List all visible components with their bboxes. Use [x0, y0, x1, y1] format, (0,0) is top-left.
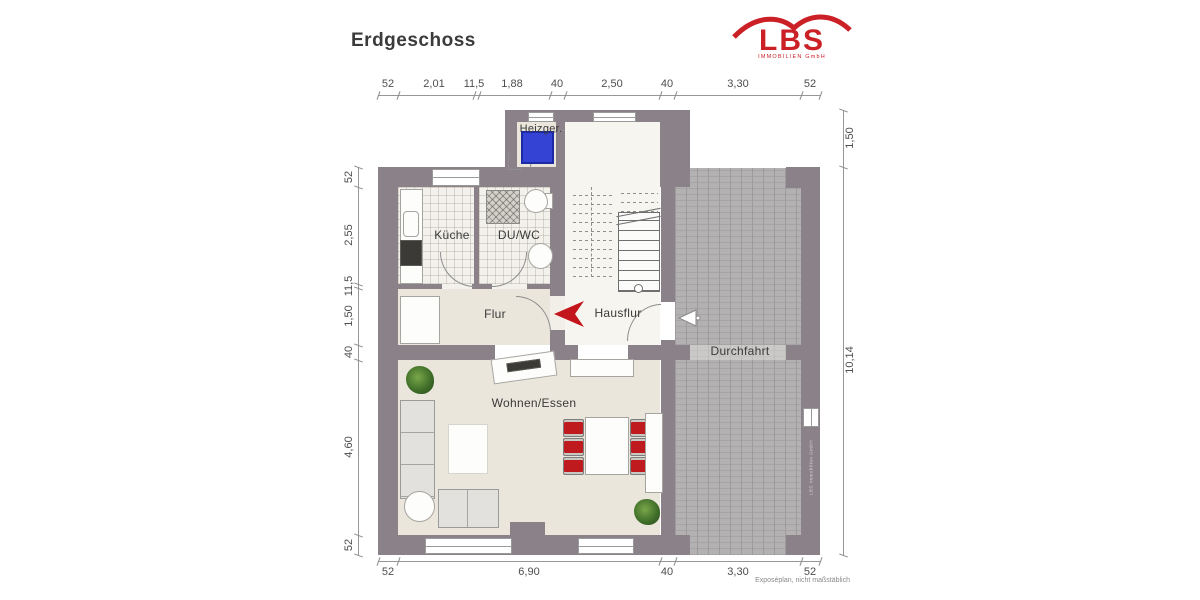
- floor-durchfahrt: [675, 168, 801, 555]
- dim-label: 40: [343, 330, 355, 374]
- kitchen-stove: [400, 240, 422, 266]
- dim-label: 10,14: [844, 338, 856, 382]
- sofa-large: [400, 400, 435, 499]
- dimension-line-top: [378, 95, 820, 96]
- wall-pillar: [786, 345, 801, 360]
- lbs-logo-graphic: LBS IMMOBILIEN GmbH: [730, 6, 854, 60]
- dim-label: 6,90: [507, 566, 551, 578]
- wall-segment: [398, 284, 442, 289]
- entrance-arrow-icon: [554, 301, 584, 327]
- dim-label: 3,30: [716, 78, 760, 90]
- dining-chair: [563, 457, 584, 475]
- footnote: Exposéplan, nicht maßstäblich: [640, 577, 850, 584]
- dim-label: 40: [645, 78, 689, 90]
- stairs-centerline: [591, 187, 592, 277]
- dim-label: 1,88: [490, 78, 534, 90]
- window: [528, 112, 554, 122]
- wall-segment: [550, 328, 565, 345]
- plan-watermark: LBS Immobilien GmbH: [809, 418, 814, 518]
- dim-label: 52: [366, 566, 410, 578]
- window: [425, 538, 512, 554]
- wall-pillar: [675, 535, 690, 555]
- wall-pillar: [675, 345, 690, 360]
- wall-segment: [378, 167, 398, 555]
- dining-chair: [563, 438, 584, 456]
- room-label-durchfahrt: Durchfahrt: [710, 344, 769, 358]
- door-direction-icon: [677, 308, 701, 328]
- plant: [634, 499, 660, 525]
- dining-table: [585, 417, 629, 475]
- wall-segment: [660, 167, 690, 187]
- tv: [506, 359, 541, 373]
- wall-segment: [472, 284, 492, 289]
- heater-pipe: [508, 169, 522, 170]
- cabinet: [570, 359, 634, 377]
- window: [593, 112, 636, 122]
- wall-segment: [527, 284, 550, 289]
- logo-text: LBS: [759, 24, 825, 57]
- wardrobe: [400, 296, 440, 344]
- sideboard: [645, 413, 663, 493]
- dim-label: 40: [535, 78, 579, 90]
- dim-label: 52: [366, 78, 410, 90]
- stairs-newel: [634, 284, 643, 293]
- dim-label: 2,01: [412, 78, 456, 90]
- dimension-line-bottom: [378, 561, 820, 562]
- sofa-small: [438, 489, 499, 528]
- wall-segment: [660, 110, 690, 168]
- room-label-flur: Flur: [484, 307, 506, 321]
- dining-chair: [563, 419, 584, 437]
- window: [432, 169, 480, 186]
- wall-segment: [628, 345, 661, 360]
- stairs-lower-flight: [618, 212, 660, 292]
- coffee-table: [448, 424, 488, 474]
- room-label-heizgeraet: Heizger.: [520, 123, 563, 135]
- floorplan-page: Erdgeschoss LBS IMMOBILIEN GmbH: [0, 0, 1200, 600]
- dim-label: 52: [343, 155, 355, 199]
- room-label-duwc: DU/WC: [498, 228, 540, 242]
- lbs-logo: LBS IMMOBILIEN GmbH: [730, 6, 854, 60]
- window: [578, 538, 634, 554]
- room-label-wohnen: Wohnen/Essen: [492, 396, 577, 410]
- room-label-kueche: Küche: [434, 228, 470, 242]
- washbasin: [528, 243, 553, 269]
- wall-segment: [661, 187, 675, 535]
- dim-label: 2,55: [343, 213, 355, 257]
- wall-segment: [398, 167, 565, 187]
- page-title: Erdgeschoss: [351, 30, 476, 52]
- dim-label: 1,50: [844, 116, 856, 160]
- plant: [406, 366, 434, 394]
- kitchen-sink: [403, 211, 419, 237]
- wall-segment: [398, 345, 495, 360]
- entrance-door-opening: [661, 302, 675, 340]
- toilet: [524, 189, 548, 213]
- shower: [486, 190, 520, 224]
- dimension-line-right: [843, 110, 844, 555]
- logo-subtitle: IMMOBILIEN GmbH: [758, 54, 826, 60]
- heater-pipe: [508, 152, 509, 170]
- heating-unit: [521, 131, 554, 164]
- dim-label: 2,50: [590, 78, 634, 90]
- room-label-hausflur: Hausflur: [594, 306, 641, 320]
- dim-label: 52: [788, 78, 832, 90]
- wall-pillar: [510, 522, 545, 535]
- wall-pillar: [786, 535, 801, 555]
- side-table: [404, 491, 435, 522]
- dim-label: 52: [343, 523, 355, 567]
- wall-pillar: [786, 167, 801, 188]
- dim-label: 4,60: [343, 425, 355, 469]
